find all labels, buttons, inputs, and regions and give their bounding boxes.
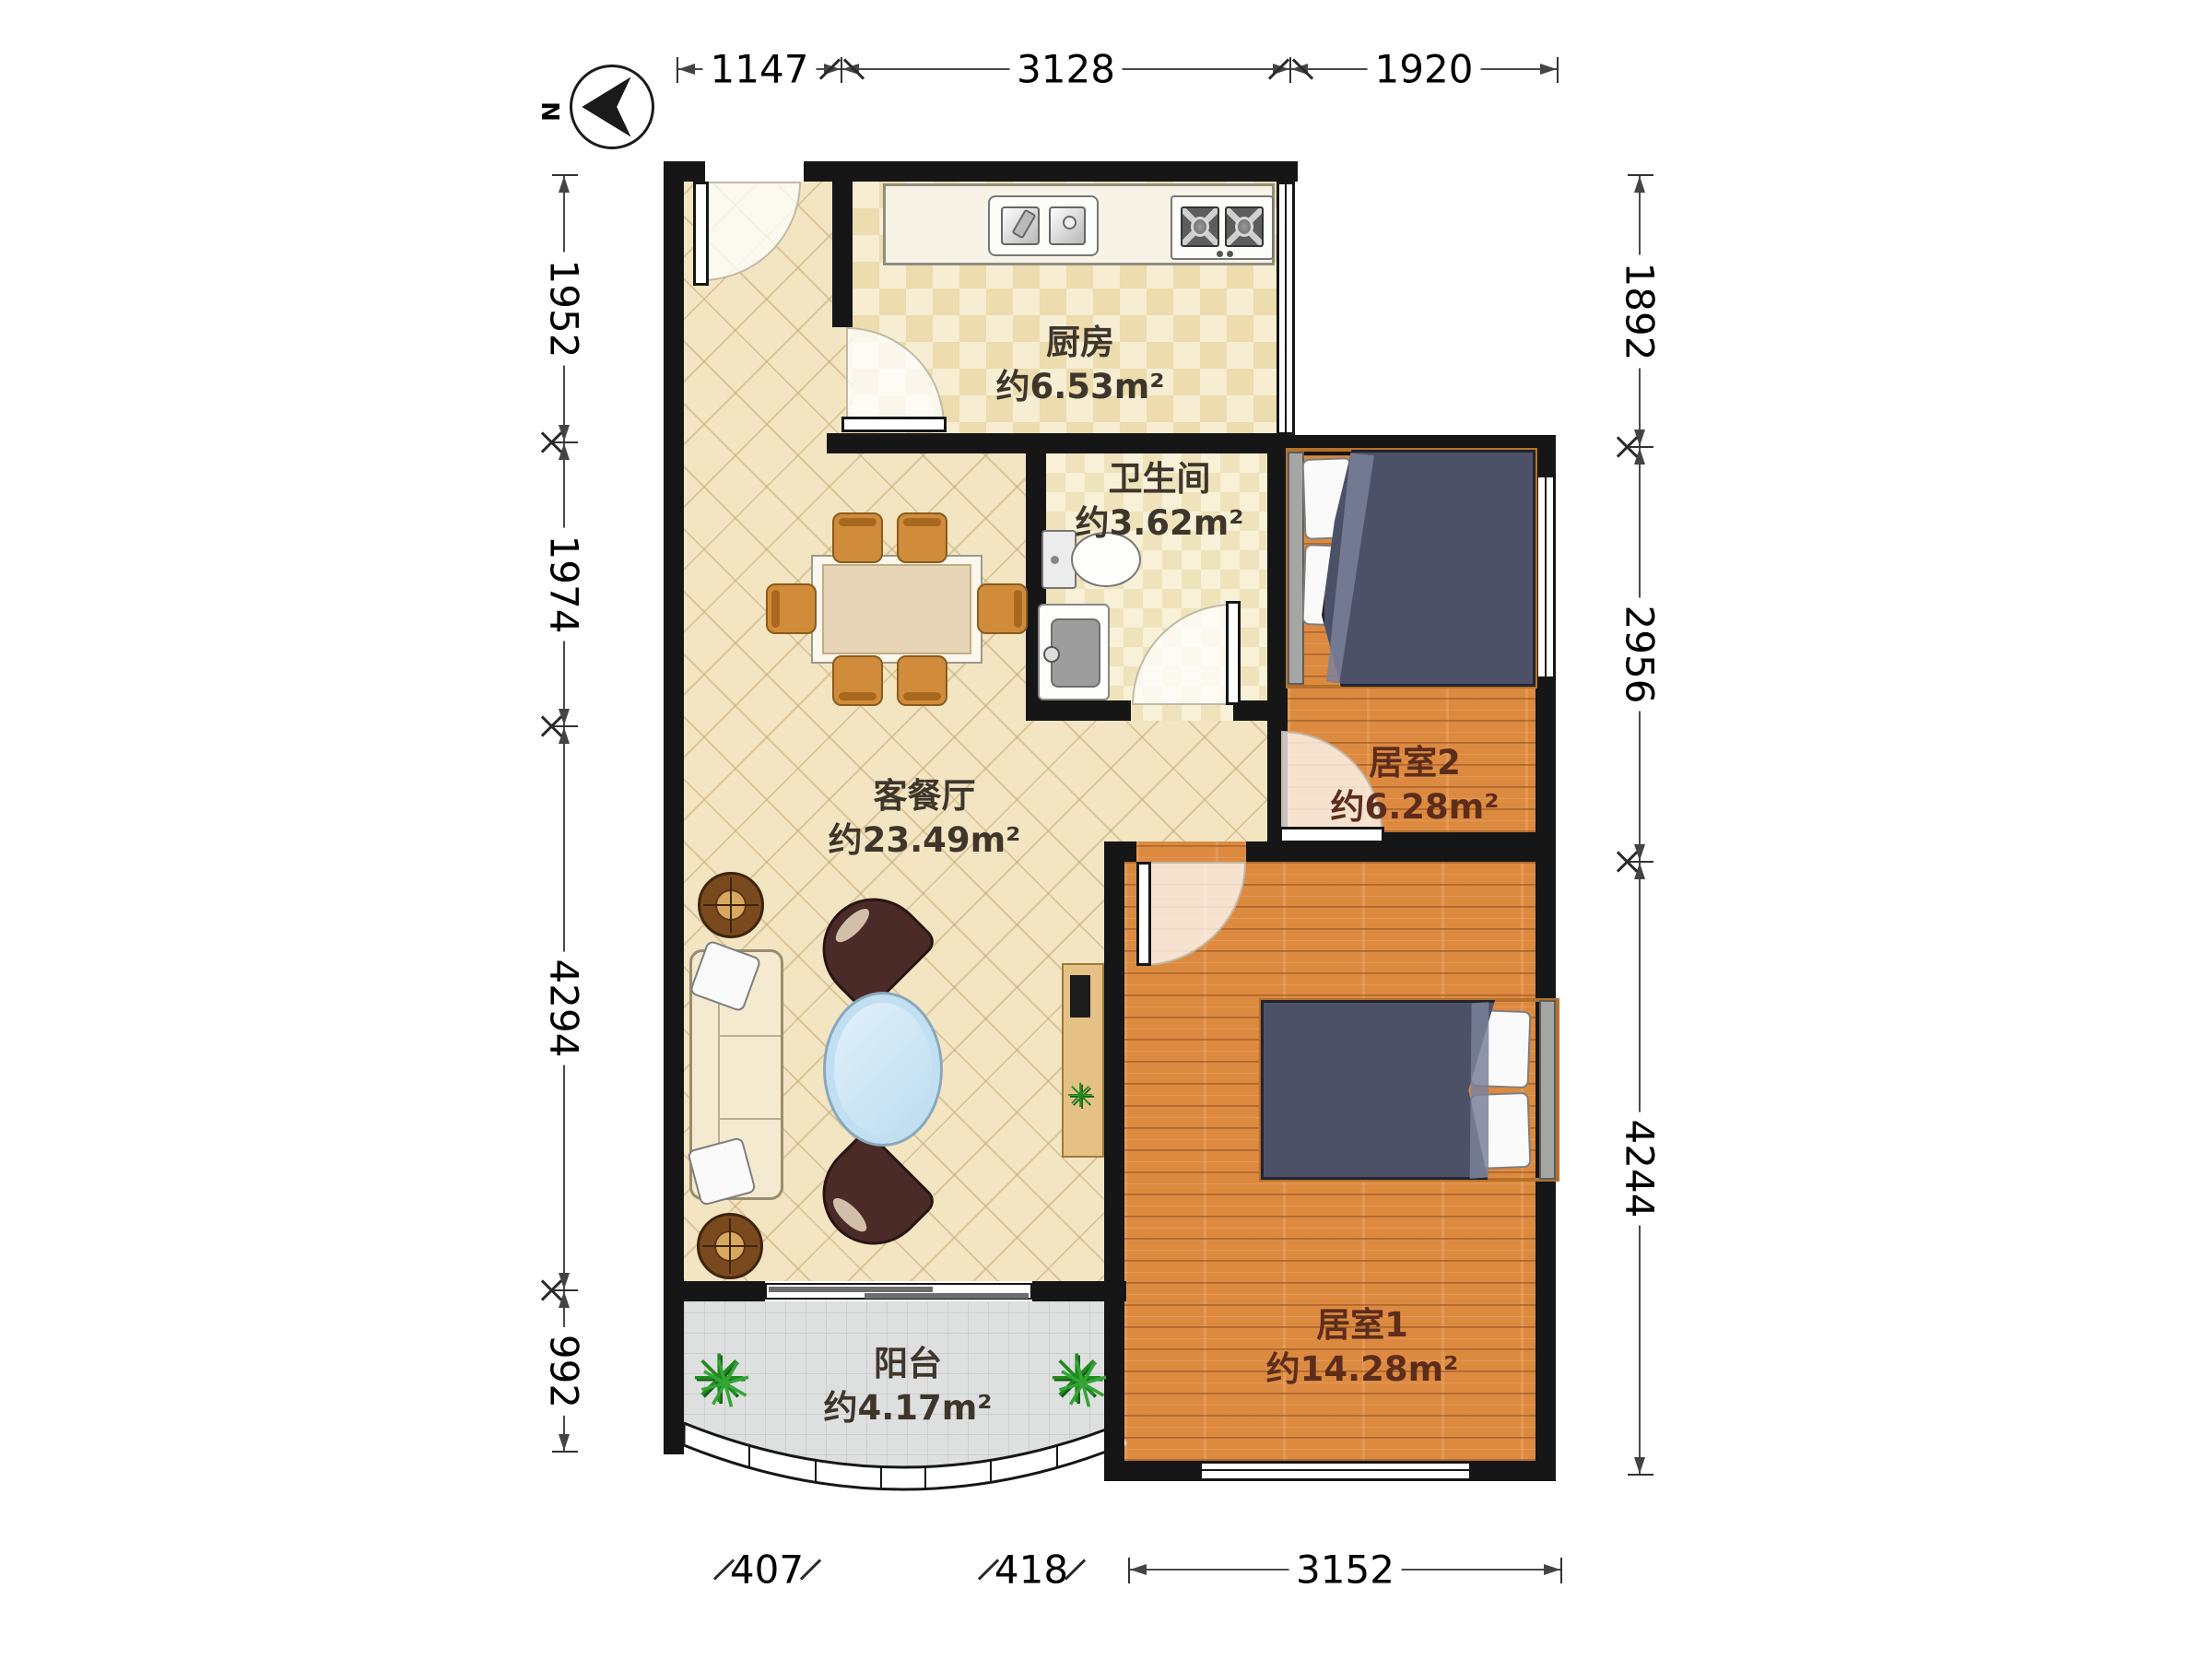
bedroom1-door-leaf [1136,862,1151,966]
wall-entry-kitchen-divider [832,182,853,327]
dimension-right: 1892 [1639,175,1641,447]
bedroom1-window [1199,1461,1472,1481]
wall-top-main [804,161,1298,182]
room-label-bedroom2: 居室2 约6.28m² [1286,741,1544,829]
wall-bedroom1-bottom-left [1106,1461,1199,1481]
coffee-table [823,992,943,1147]
dimension-value: 1892 [1618,254,1663,368]
room-name: 客餐厅 [795,774,1053,818]
wall-bedroom2-bottom [1382,832,1556,862]
north-label: N [538,101,566,122]
dining-chair [832,512,883,563]
wall-kitchen-bottom [827,433,1288,453]
room-area: 约6.53m² [951,365,1209,409]
bedroom2-window [1535,475,1556,679]
wall-right-upper [1535,435,1556,475]
dining-table [822,564,971,654]
dimension-value: 3128 [1009,47,1123,92]
room-label-bedroom1: 居室1 约14.28m² [1233,1303,1491,1392]
dimension-value: 2956 [1618,598,1663,712]
side-table [698,872,764,938]
bed1-headboard [1539,1000,1556,1180]
dimension-top: 1147 [677,68,841,70]
room-area: 约3.62m² [1030,501,1288,546]
wall-bedroom1-top-right [1246,841,1382,862]
dining-chair [897,512,947,563]
bed2-headboard [1288,452,1304,685]
room-name: 居室1 [1233,1303,1491,1347]
side-table [697,1213,763,1279]
dimension-value: 407 [723,1547,811,1593]
dimension-left: 992 [563,1290,565,1452]
dimension-left: 4294 [563,726,565,1290]
dimension-value: 4294 [542,952,587,1065]
room-name: 卫生间 [1030,457,1288,501]
room-area: 约4.17m² [779,1386,1037,1430]
dimension-value: 992 [542,1326,587,1415]
room-label-balcony: 阳台 约4.17m² [779,1342,1037,1430]
dimension-top: 3128 [841,68,1290,70]
dimension-top: 1920 [1290,68,1558,70]
kitchen-sink [988,195,1099,256]
floor-plan: ✳ ✳✳ ✳✳ 厨房 约6.53m² 卫生间 约3.62m² 客餐厅 约23.4… [0,0,2212,1659]
room-area: 约14.28m² [1233,1347,1491,1392]
plant-icon: ✳✳ [691,1346,747,1412]
wall-bathroom-bottom-left [1026,700,1131,721]
plant-icon: ✳✳ [1049,1346,1104,1412]
dimension-bottom: 407 [735,1569,798,1571]
north-compass-icon [570,65,654,149]
room-label-kitchen: 厨房 约6.53m² [951,321,1209,409]
room-label-bathroom: 卫生间 约3.62m² [1030,457,1288,546]
bed1-blanket [1261,1000,1502,1180]
dimension-value: 1974 [542,528,587,641]
kitchen-door-leaf [841,417,947,432]
wall-bedroom1-bottom-right [1472,1461,1556,1481]
room-area: 约23.49m² [795,818,1053,863]
kitchen-stove [1171,195,1274,260]
dimension-value: 1952 [542,253,587,366]
room-name: 厨房 [951,321,1209,365]
room-label-living-dining: 客餐厅 约23.49m² [795,774,1053,863]
dining-chair [766,583,817,634]
dining-chair [897,655,947,706]
tv [1070,975,1090,1018]
kitchen-window [1277,182,1295,435]
bathroom-door-leaf [1226,601,1241,705]
wall-balcony-divider-left [664,1281,765,1301]
dimension-left: 1952 [563,175,565,442]
entry-door-leaf [693,182,709,286]
tv-cabinet [1062,963,1104,1158]
room-name: 居室2 [1286,741,1544,785]
dining-chair [832,655,883,706]
room-name: 阳台 [779,1342,1037,1386]
dimension-bottom: 418 [1000,1569,1063,1571]
dimension-value: 1920 [1368,47,1481,92]
dimension-left: 1974 [563,442,565,726]
plant-icon: ✳ [1066,1080,1094,1113]
dimension-value: 1147 [703,47,817,92]
dining-chair [977,583,1028,634]
wall-balcony-divider-right [1032,1281,1126,1301]
dimension-bottom: 3152 [1129,1569,1561,1571]
dimension-value: 4244 [1618,1112,1663,1225]
room-area: 约6.28m² [1286,785,1544,829]
wall-left-outer [664,161,684,1454]
dimension-right: 2956 [1639,447,1641,862]
balcony-sliding-door [765,1283,1032,1300]
dimension-value: 418 [987,1547,1076,1593]
bathroom-sink [1038,604,1110,700]
dimension-right: 4244 [1639,862,1641,1475]
dimension-value: 3152 [1288,1547,1402,1593]
